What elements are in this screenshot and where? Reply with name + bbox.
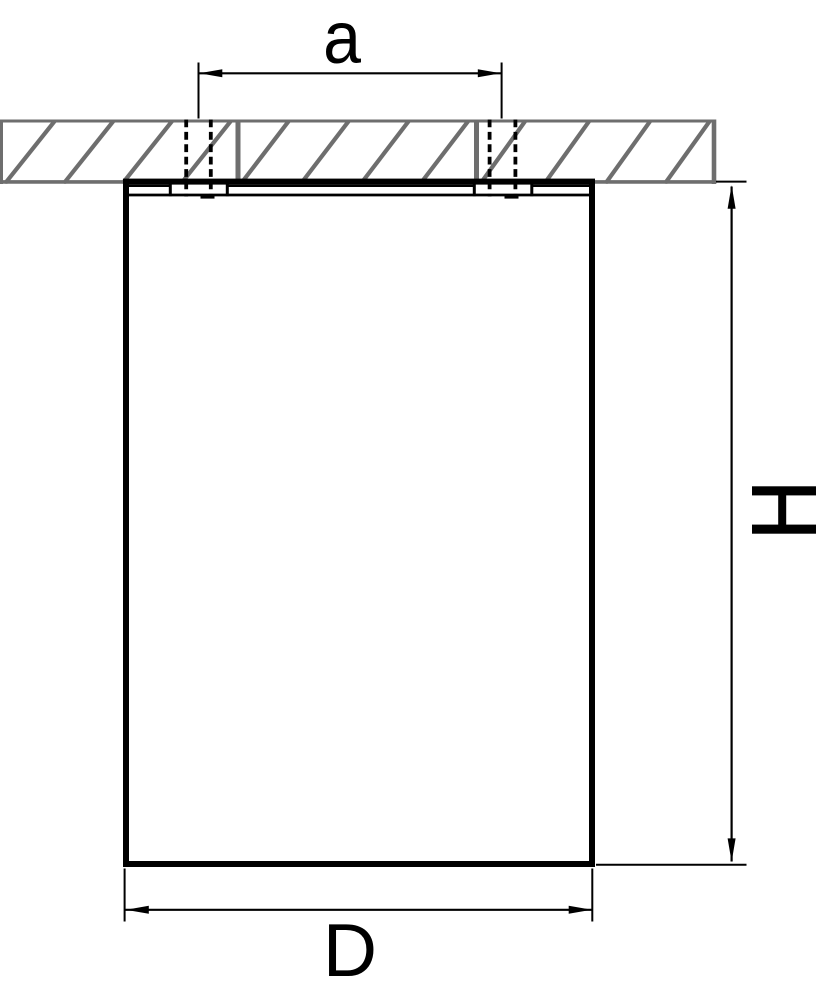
svg-text:a: a — [323, 0, 361, 80]
svg-text:D: D — [323, 908, 377, 992]
